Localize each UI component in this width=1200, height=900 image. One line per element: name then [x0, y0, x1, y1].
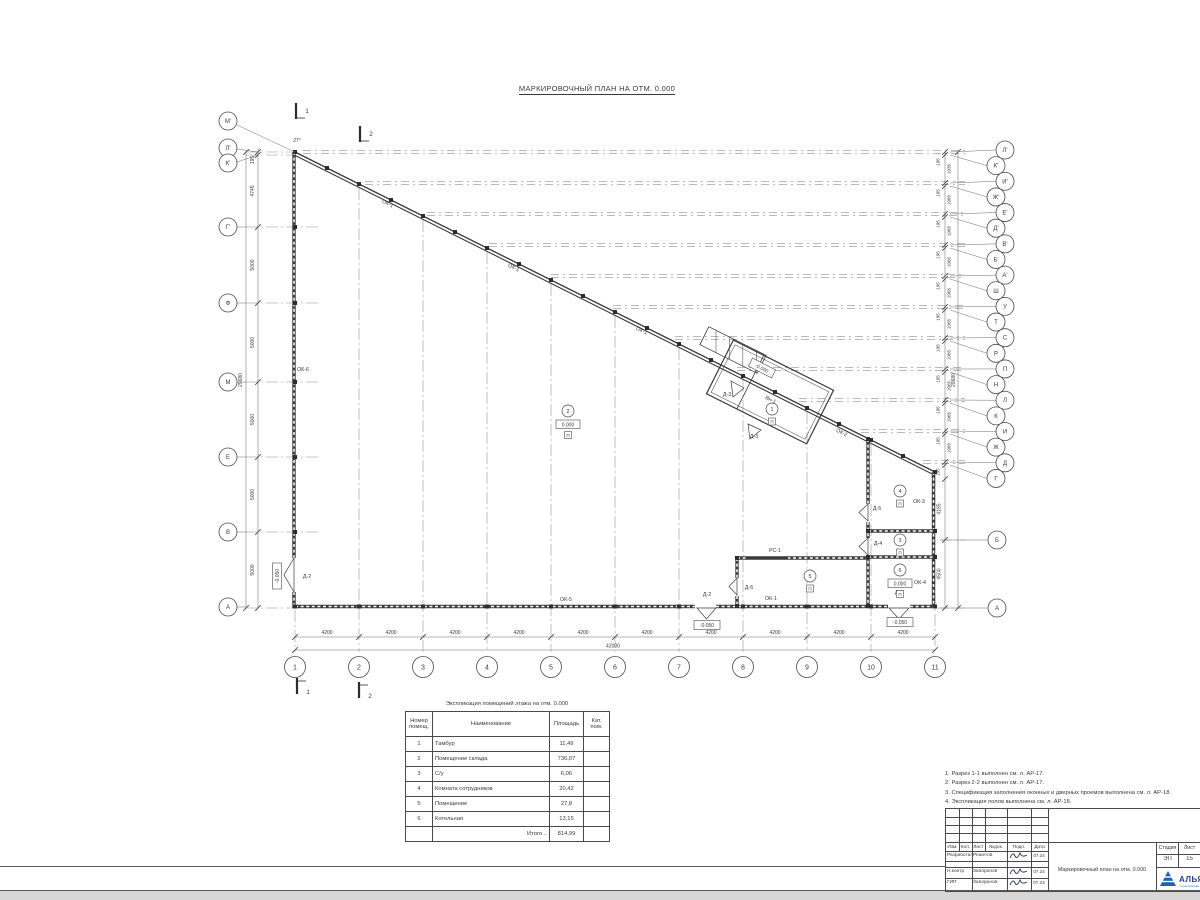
- table-cell: 20,42: [550, 782, 584, 797]
- elevation-mark: -0.050: [694, 621, 720, 630]
- column: [421, 605, 425, 609]
- floor-type: П: [808, 586, 811, 591]
- dim-label: 4200: [641, 630, 652, 636]
- column: [735, 556, 739, 560]
- logo-triangle-icon: АЛЬЯНС строительная компания: [1158, 869, 1200, 889]
- table-total-row: Итого .. 814,99: [406, 827, 610, 842]
- room-legend: Экспликация помещений этажа на отм. 0.00…: [405, 701, 609, 842]
- mark-label: Д-5: [873, 506, 881, 512]
- signature: [1009, 851, 1029, 861]
- table-cell: 736,07: [550, 752, 584, 767]
- axis-label-left: Ф: [226, 301, 231, 307]
- signer-role: Н.контр: [947, 869, 972, 874]
- axis-label-bottom: 9: [805, 665, 809, 672]
- mark-label: ОК-1: [765, 596, 777, 602]
- titleblock-line: [1048, 809, 1049, 891]
- mark-label: ОК-5: [560, 597, 572, 603]
- note-line: 4. Экспликация полов выполнена см. л. АР…: [945, 798, 1195, 807]
- axis-label-right: А': [1002, 273, 1007, 279]
- titleblock-header-col: Подп.: [1007, 845, 1031, 850]
- dim-label: 5000: [250, 414, 256, 425]
- axis-leader: [950, 186, 987, 197]
- column: [357, 605, 361, 609]
- signer-role: Разработал: [947, 853, 972, 858]
- dim-label: 5000: [250, 489, 256, 500]
- room-number: 1: [770, 407, 773, 413]
- signer-role: ГИП: [947, 880, 972, 885]
- mark-label: ОК-3: [913, 499, 925, 505]
- table-cell: С/у: [433, 767, 550, 782]
- column: [866, 555, 870, 559]
- signer-name: Заборонов: [973, 869, 1006, 874]
- dim-label: 1965: [947, 318, 952, 329]
- stage-value: ЭП: [1157, 856, 1178, 862]
- dim-label: 195: [936, 313, 941, 321]
- axis-label-bottom: 10: [867, 665, 875, 672]
- column: [549, 605, 553, 609]
- axis-label-right: Л: [1003, 398, 1007, 404]
- column: [933, 529, 937, 533]
- table-header: Номер помещ.: [406, 712, 433, 737]
- table-cell: 2: [406, 752, 433, 767]
- table-row: 4Комната сотрудников20,42: [406, 782, 610, 797]
- dim-label: 4200: [833, 630, 844, 636]
- column: [866, 604, 870, 608]
- table-cell: Помещение склада: [433, 752, 550, 767]
- axis-label-right: Ш: [993, 289, 999, 295]
- table-row: 5Помещение27,8: [406, 797, 610, 812]
- axis-label-bottom: 8: [741, 665, 745, 672]
- signer-date: 07.24: [1031, 869, 1047, 874]
- dim-label: 4200: [321, 630, 332, 636]
- signature: [1009, 878, 1029, 888]
- elevation-mark: -0.050: [887, 618, 913, 627]
- table-header: Площадь: [550, 712, 584, 737]
- titleblock-line: [946, 825, 1048, 826]
- axis-label-bottom: 11: [931, 665, 938, 672]
- column: [293, 301, 297, 305]
- table-cell: 3: [406, 767, 433, 782]
- table-header: Наименование: [433, 712, 550, 737]
- titleblock-line: [1007, 851, 1008, 891]
- axis-label-left: К': [226, 161, 231, 167]
- titleblock-header-col: Лист: [972, 845, 985, 850]
- axis-leader: [950, 403, 987, 416]
- signer-date: 07.24: [1031, 880, 1047, 885]
- table-cell: 13,15: [550, 812, 584, 827]
- titleblock-header-col: №док.: [985, 845, 1007, 850]
- room-number: 3: [898, 538, 901, 544]
- axis-label-bottom: 6: [613, 665, 617, 672]
- titleblock-line: [946, 878, 1048, 879]
- notes-list: 1. Разрез 1-1 выполнен см. л. АР-17.2. Р…: [945, 770, 1195, 807]
- axis-label-right: С: [1003, 336, 1008, 342]
- dim-label: 29680: [951, 373, 957, 387]
- axis-leader: [950, 434, 987, 447]
- titleblock-header-col: Изм.: [946, 845, 959, 850]
- sheet-label: Лист: [1179, 845, 1200, 851]
- mark-label: Д-6: [745, 585, 753, 591]
- column: [293, 530, 297, 534]
- dim-label: 4200: [577, 630, 588, 636]
- axis-label-left: Г': [226, 225, 230, 231]
- floor-type: П: [898, 592, 901, 597]
- dim-label: 4200: [449, 630, 460, 636]
- room-number: 4: [898, 489, 901, 495]
- room-legend-table: Номер помещ.НаименованиеПлощадьКат. пом.…: [405, 711, 610, 842]
- company-subtitle: строительная компания: [1179, 884, 1200, 888]
- dim-label: 195: [936, 406, 941, 414]
- elevation-value: -0.050: [893, 620, 907, 626]
- table-row: 3С/у6,06: [406, 767, 610, 782]
- dim-label: 195: [936, 375, 941, 383]
- table-cell: 27,8: [550, 797, 584, 812]
- axis-label-right: В': [1002, 242, 1007, 248]
- dim-label: 195: [936, 251, 941, 259]
- column: [613, 605, 617, 609]
- table-cell: [584, 737, 610, 752]
- column: [866, 437, 870, 441]
- table-cell: Тамбур: [433, 737, 550, 752]
- dim-label: 4745: [250, 185, 256, 196]
- dim-label: 1965: [947, 411, 952, 422]
- table-cell: 6,06: [550, 767, 584, 782]
- column: [709, 358, 713, 362]
- table-row: 2Помещение склада736,07: [406, 752, 610, 767]
- dim-label: 1965: [947, 349, 952, 360]
- company-logo: АЛЬЯНС строительная компания: [1158, 869, 1200, 889]
- dim-label: 4500: [937, 568, 943, 579]
- dim-label: 195: [936, 344, 941, 352]
- stage-label: Стадия: [1157, 845, 1178, 851]
- mark-label: ОК-2: [835, 428, 848, 439]
- column: [805, 605, 809, 609]
- axis-label-left: М': [225, 119, 231, 125]
- mark-label: ОК-4: [914, 580, 926, 586]
- table-cell: [584, 767, 610, 782]
- titleblock-line: [1156, 867, 1200, 868]
- column: [485, 605, 489, 609]
- room-elevation: 0.000: [562, 422, 575, 428]
- signer-date: 07.24: [1031, 853, 1047, 858]
- axis-label-bottom: 4: [485, 665, 489, 672]
- axis-leader: [237, 125, 295, 152]
- table-cell: 5: [406, 797, 433, 812]
- dim-label: 4200: [705, 630, 716, 636]
- axis-label-bottom: 7: [677, 665, 681, 672]
- mark-label: Д-3: [750, 434, 758, 440]
- axis-leader: [950, 279, 987, 291]
- column: [933, 470, 937, 474]
- table-cell: 6: [406, 812, 433, 827]
- column: [837, 422, 841, 426]
- dim-label: 195: [936, 189, 941, 197]
- axis-label-left: М: [226, 380, 231, 386]
- column: [866, 529, 870, 533]
- company-name: АЛЬЯНС: [1179, 875, 1200, 884]
- titleblock-line: [946, 833, 1048, 834]
- elevation-value: -0.050: [275, 569, 281, 583]
- titleblock-line: [1156, 854, 1200, 855]
- titleblock-line: [946, 817, 1048, 818]
- signature-stroke: [1010, 853, 1027, 858]
- axis-label-right: Ж: [993, 445, 999, 451]
- title-block: Маркировочный план на отм. 0.000 Стадия …: [945, 808, 1200, 892]
- dim-label: 195: [936, 282, 941, 290]
- column: [741, 374, 745, 378]
- titleblock-header-col: Кол.: [959, 845, 972, 850]
- signature-stroke: [1010, 880, 1027, 885]
- axis-label-right: И: [1003, 430, 1007, 436]
- dim-label: 5000: [250, 259, 256, 270]
- dim-label: 1965: [947, 442, 952, 453]
- axis-label-right: У: [1003, 304, 1007, 310]
- axis-leader: [950, 306, 996, 307]
- axis-label-right: Р: [994, 351, 998, 357]
- room-legend-title: Экспликация помещений этажа на отм. 0.00…: [405, 701, 609, 707]
- total-label: Итого ..: [433, 827, 550, 842]
- column: [549, 278, 553, 282]
- column: [805, 406, 809, 410]
- elevation-mark: -0.050: [273, 563, 282, 589]
- mark-label: Д-2: [303, 574, 311, 580]
- table-cell: [584, 812, 610, 827]
- axis-leader: [950, 217, 987, 228]
- door-leaf: [859, 504, 868, 521]
- axis-label-left: Л': [225, 146, 230, 152]
- axis-leader: [950, 244, 996, 245]
- dim-label: 4200: [897, 630, 908, 636]
- floor-type: П: [898, 501, 901, 506]
- titleblock-line: [946, 861, 1048, 862]
- sheet-edge: [0, 891, 1200, 900]
- axis-leader: [950, 181, 996, 183]
- mark-label: ОК-6: [297, 367, 309, 373]
- table-row: 6Котельная13,15: [406, 812, 610, 827]
- dim-label: 1965: [947, 194, 952, 205]
- door-leaf: [697, 608, 716, 619]
- axis-leader: [237, 149, 258, 152]
- door-leaf: [284, 558, 294, 592]
- column: [677, 342, 681, 346]
- note-line: 2. Разрез 2-2 выполнен см. л. АР-17.: [945, 779, 1195, 788]
- floor-type: П: [898, 550, 901, 555]
- axis-label-right: Ж': [993, 195, 1000, 201]
- table-cell: 4: [406, 782, 433, 797]
- axis-leader: [950, 248, 987, 259]
- dim-label: 5000: [250, 564, 256, 575]
- dim-label: 195: [936, 220, 941, 228]
- dim-label: 42000: [606, 644, 620, 650]
- table-cell: Комната сотрудников: [433, 782, 550, 797]
- door-leaf: [859, 538, 868, 555]
- dim-label: 4200: [769, 630, 780, 636]
- room-number: 6: [898, 568, 901, 574]
- signer-name: Решетов: [973, 853, 1006, 858]
- frame-line: [0, 866, 945, 867]
- mark-label: Д-4: [874, 541, 882, 547]
- floor-type: П: [566, 433, 569, 438]
- axis-label-right: Е': [1002, 211, 1007, 217]
- mark-label: Д-2: [703, 592, 711, 598]
- axis-label-right: Б: [995, 538, 999, 544]
- axis-label-right: К: [994, 414, 998, 420]
- axis-leader: [950, 431, 996, 432]
- axis-label-right: К': [994, 164, 999, 170]
- room-elevation: 0.000: [894, 581, 907, 587]
- elevation-mark: -0.050: [748, 358, 775, 378]
- dim-label: 5000: [250, 337, 256, 348]
- column: [741, 605, 745, 609]
- section-label: 1: [305, 108, 309, 115]
- column: [421, 214, 425, 218]
- axis-label-right: П: [1003, 367, 1007, 373]
- column: [357, 182, 361, 186]
- signature-stroke: [1010, 869, 1027, 874]
- room-number: 5: [808, 574, 811, 580]
- titleblock-line: [946, 867, 1048, 868]
- axis-label-left: В: [226, 530, 230, 536]
- axis-label-bottom: 3: [421, 665, 425, 672]
- axis-leader: [950, 275, 996, 276]
- floor-type: П: [770, 419, 773, 424]
- mark-label: РС-1: [769, 548, 781, 554]
- axis-leader: [950, 341, 987, 353]
- axis-label-right: Н: [994, 383, 998, 389]
- column: [293, 605, 297, 609]
- column: [485, 246, 489, 250]
- table-cell: 1: [406, 737, 433, 752]
- axis-label-left: Е: [226, 455, 230, 461]
- titleblock-header-col: Дата: [1031, 845, 1048, 850]
- column: [933, 555, 937, 559]
- axis-label-right: И': [1002, 179, 1007, 185]
- axis-label-right: Б': [993, 257, 998, 263]
- table-cell: 11,49: [550, 737, 584, 752]
- column: [293, 380, 297, 384]
- column: [325, 166, 329, 170]
- table-cell: [584, 752, 610, 767]
- total-value: 814,99: [550, 827, 584, 842]
- note-line: 3. Спецификация заполнения оконных и две…: [945, 789, 1195, 798]
- doc-title: Маркировочный план на отм. 0.000: [1049, 867, 1155, 873]
- dim-label: 1965: [947, 225, 952, 236]
- table-cell: Котельная: [433, 812, 550, 827]
- dim-label: 1965: [947, 256, 952, 267]
- axis-label-right: Д: [1003, 461, 1007, 467]
- table-header: Кат. пом.: [584, 712, 610, 737]
- section-label: 2: [368, 693, 372, 700]
- room-number: 2: [566, 409, 569, 415]
- column: [453, 230, 457, 234]
- axis-leader: [950, 310, 987, 322]
- column: [581, 294, 585, 298]
- dim-label: 195: [936, 158, 941, 166]
- column: [773, 390, 777, 394]
- door-leaf: [729, 578, 737, 595]
- axis-label-bottom: 5: [549, 665, 553, 672]
- axis-label-bottom: 2: [357, 665, 361, 672]
- table-cell: Помещение: [433, 797, 550, 812]
- column: [735, 604, 739, 608]
- column: [613, 310, 617, 314]
- dim-label: 4200: [513, 630, 524, 636]
- axis-label-right: Т: [994, 320, 998, 326]
- axis-leader: [950, 462, 996, 463]
- note-line: 1. Разрез 1-1 выполнен см. л. АР-17.: [945, 770, 1195, 779]
- column: [901, 454, 905, 458]
- dim-label: 4200: [385, 630, 396, 636]
- axis-label-left: А: [226, 605, 230, 611]
- axis-label-bottom: 1: [293, 665, 297, 672]
- angle-label: 27°: [293, 138, 301, 144]
- column: [677, 605, 681, 609]
- titleblock-line: [946, 851, 1048, 852]
- sheet-number: 15: [1179, 856, 1200, 862]
- column: [293, 225, 297, 229]
- column: [293, 455, 297, 459]
- dim-label: 1935: [947, 163, 952, 174]
- table-row: 1Тамбур11,49: [406, 737, 610, 752]
- column: [517, 262, 521, 266]
- axis-label-right: Д': [993, 226, 998, 232]
- elevation-value: -0.050: [700, 623, 714, 629]
- dim-label: 29680: [238, 373, 244, 387]
- axis-leader: [950, 465, 987, 478]
- axis-label-right: Л': [1002, 148, 1007, 154]
- column: [933, 605, 937, 609]
- axis-label-right: А: [995, 606, 999, 612]
- signature: [1009, 867, 1029, 877]
- signer-name: Заборонов: [973, 880, 1006, 885]
- section-label: 2: [369, 131, 373, 138]
- door-leaf: [731, 381, 744, 397]
- mark-label: Д-3: [723, 392, 731, 398]
- table-cell: [584, 797, 610, 812]
- dim-label: 195: [936, 437, 941, 445]
- table-cell: [584, 782, 610, 797]
- dim-label: 1965: [947, 287, 952, 298]
- section-label: 1: [306, 689, 310, 696]
- dim-label: 4185: [937, 503, 943, 514]
- axis-leader: [950, 155, 987, 166]
